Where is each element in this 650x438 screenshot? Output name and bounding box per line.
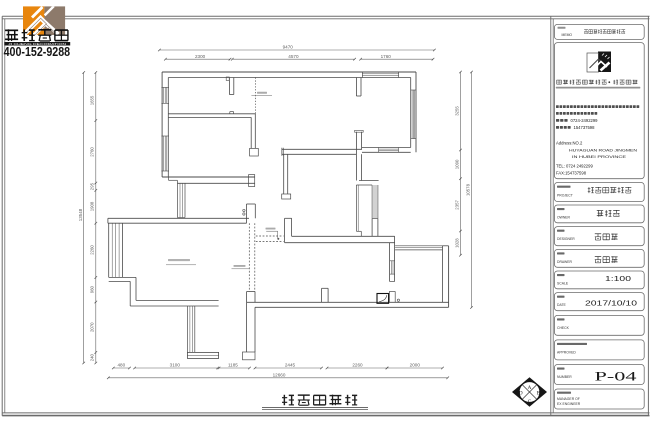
svg-text:1090: 1090 xyxy=(455,159,460,169)
svg-text:DATE: DATE xyxy=(557,303,567,307)
svg-text:9470: 9470 xyxy=(283,45,294,50)
svg-text:12660: 12660 xyxy=(273,373,286,378)
svg-text:2070: 2070 xyxy=(90,322,95,332)
svg-text:2260: 2260 xyxy=(90,245,95,255)
svg-text:B: B xyxy=(537,390,541,396)
svg-text:295: 295 xyxy=(90,182,95,190)
svg-text:2017/10/10: 2017/10/10 xyxy=(585,298,637,307)
svg-text:1185: 1185 xyxy=(228,363,238,368)
svg-text:1028: 1028 xyxy=(455,238,460,248)
svg-text:OWNER: OWNER xyxy=(557,216,571,220)
svg-text:2300: 2300 xyxy=(195,54,206,59)
svg-text:480: 480 xyxy=(117,363,125,368)
svg-text:4570: 4570 xyxy=(288,54,299,59)
svg-text:2760: 2760 xyxy=(90,147,95,157)
svg-text:CHECK: CHECK xyxy=(557,326,570,330)
svg-text:1:100: 1:100 xyxy=(605,276,631,283)
svg-text:400-152-9288: 400-152-9288 xyxy=(4,45,71,59)
svg-text:2357: 2357 xyxy=(455,200,460,210)
svg-text:C: C xyxy=(528,399,532,405)
svg-text:1655: 1655 xyxy=(90,95,95,105)
svg-text:APPROVED: APPROVED xyxy=(557,351,576,355)
svg-text:2000: 2000 xyxy=(410,363,421,368)
svg-text:13548: 13548 xyxy=(78,208,83,221)
svg-text:Address:NO.2: Address:NO.2 xyxy=(556,141,583,146)
svg-text:TEL: 0724 2492299: TEL: 0724 2492299 xyxy=(556,164,593,169)
svg-text:240: 240 xyxy=(90,354,95,362)
svg-text:2445: 2445 xyxy=(285,363,296,368)
svg-text:DRAWER: DRAWER xyxy=(557,260,572,264)
svg-text:A: A xyxy=(528,385,532,391)
svg-text:3100: 3100 xyxy=(170,363,181,368)
svg-text:PROJECT: PROJECT xyxy=(557,194,573,198)
svg-text:154737598: 154737598 xyxy=(574,125,596,130)
svg-text:1908: 1908 xyxy=(90,201,95,211)
svg-text:0724-2492299: 0724-2492299 xyxy=(571,118,599,123)
svg-text:HUYAGUAN ROAD JINGMEN: HUYAGUAN ROAD JINGMEN xyxy=(569,148,637,153)
svg-text:DESIGNER: DESIGNER xyxy=(557,237,575,241)
svg-text:MANAGER OF: MANAGER OF xyxy=(557,397,580,401)
svg-text:3255: 3255 xyxy=(455,106,460,116)
svg-text:2260: 2260 xyxy=(352,363,363,368)
svg-text:SCALE: SCALE xyxy=(557,282,569,286)
svg-text:IN HUBEI PROVINCE: IN HUBEI PROVINCE xyxy=(572,154,626,159)
svg-text:10578: 10578 xyxy=(466,183,471,196)
svg-text:D: D xyxy=(519,390,523,396)
svg-text:P-04: P-04 xyxy=(595,369,638,384)
svg-text:NUMBER: NUMBER xyxy=(557,375,572,379)
svg-text:FAX:154737598: FAX:154737598 xyxy=(556,171,587,176)
svg-text:1760: 1760 xyxy=(381,54,392,59)
svg-text:960: 960 xyxy=(90,286,95,294)
svg-text:MEMO: MEMO xyxy=(562,33,573,37)
svg-text:EX ENGINEER: EX ENGINEER xyxy=(557,402,581,406)
